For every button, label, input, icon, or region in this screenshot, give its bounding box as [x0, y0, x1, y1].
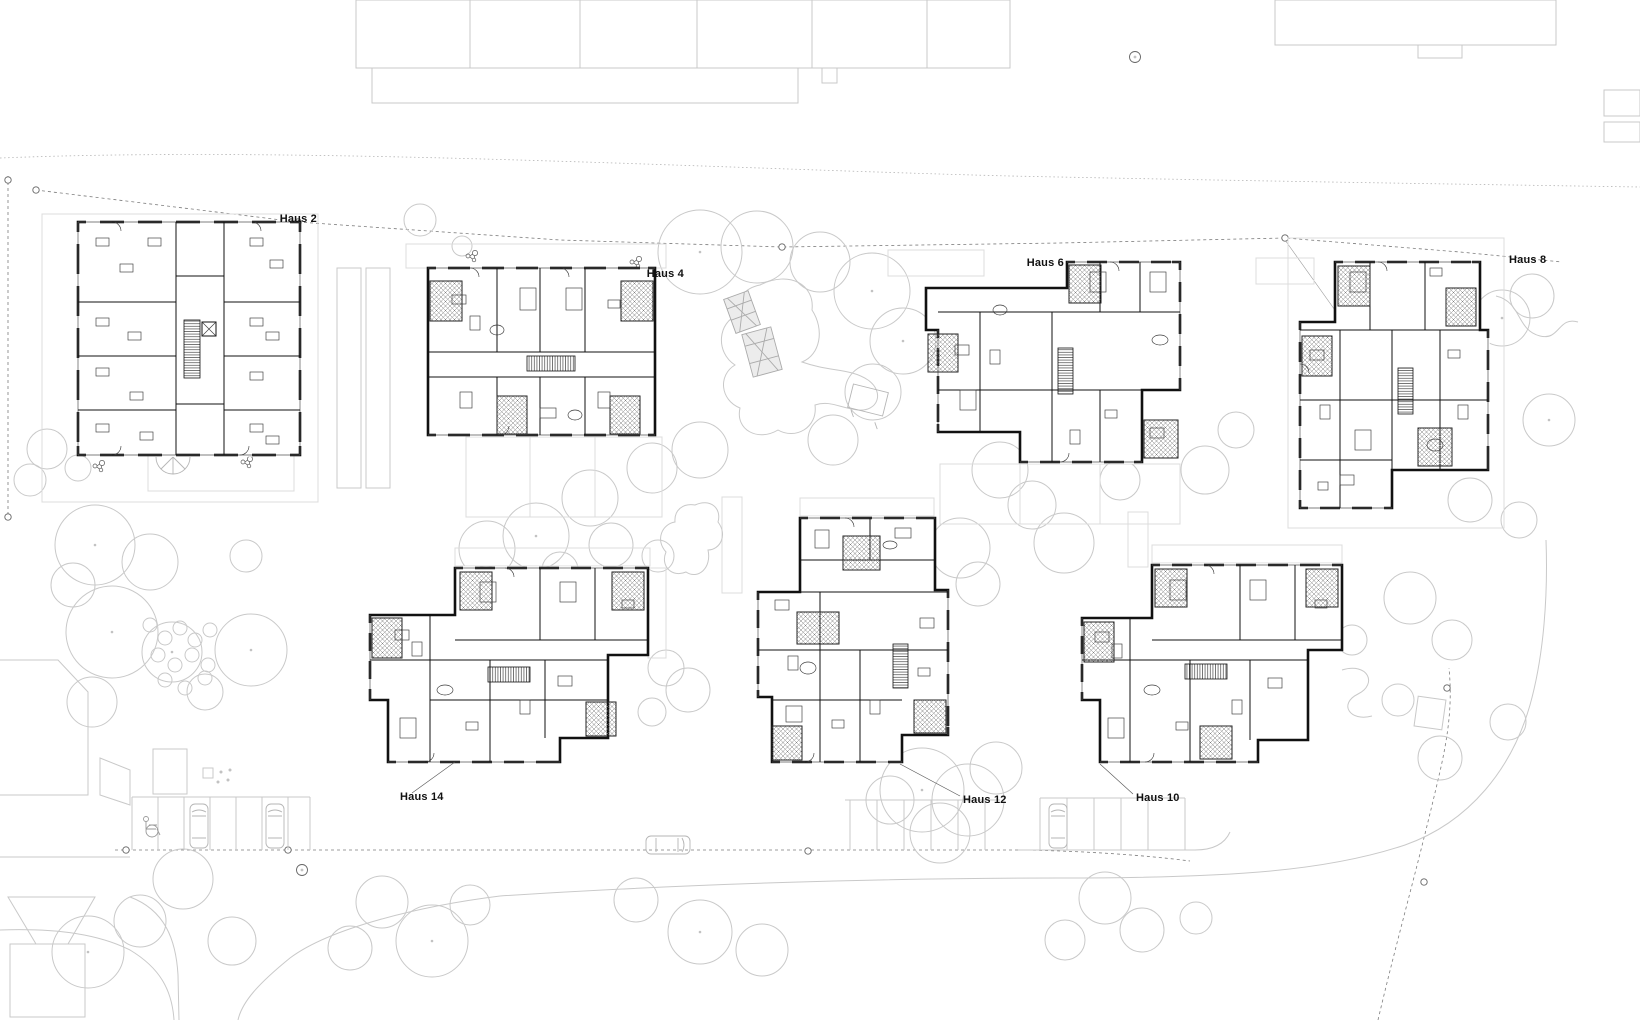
- building-haus-4: Haus 4: [428, 268, 685, 435]
- plant-icon: [93, 460, 105, 471]
- play-equipment: [724, 291, 783, 377]
- car-icon: [266, 804, 284, 848]
- haus-2-label: Haus 2: [280, 213, 317, 225]
- haus-12-label: Haus 12: [963, 794, 1007, 806]
- bench: [848, 384, 889, 429]
- car-icon: [646, 836, 690, 854]
- plant-icon: [630, 256, 642, 267]
- plant-icon: [466, 250, 478, 261]
- car-icon: [190, 804, 208, 848]
- building-haus-14: Haus 14: [370, 568, 648, 803]
- plant-icon: [241, 456, 253, 467]
- haus-14-label: Haus 14: [400, 791, 444, 803]
- bush-cluster: [143, 618, 217, 695]
- building-haus-2: Haus 2: [78, 213, 317, 455]
- haus-8-label: Haus 8: [1509, 254, 1546, 266]
- haus-4-label: Haus 4: [647, 268, 685, 280]
- haus-6-label: Haus 6: [1027, 257, 1064, 269]
- parking-southwest: [132, 749, 310, 850]
- trellis: [153, 749, 187, 794]
- building-haus-10: Haus 10: [1082, 565, 1342, 804]
- building-haus-12: Haus 12: [758, 518, 1007, 806]
- context-neighbor-buildings: [0, 0, 1640, 1017]
- haus-10-leader-line: [1100, 764, 1133, 794]
- building-haus-8: Haus 8: [1300, 254, 1546, 508]
- parking-lots: [132, 749, 1185, 854]
- parking-south-center: [845, 798, 1185, 850]
- car-icon: [1049, 804, 1067, 848]
- haus-10-label: Haus 10: [1136, 792, 1180, 804]
- building-haus-6: Haus 6: [926, 257, 1180, 462]
- spiral-stair: [156, 457, 190, 474]
- haus-14-leader-line: [412, 762, 455, 793]
- site-plan-drawing: Haus 2 Haus 4: [0, 0, 1640, 1020]
